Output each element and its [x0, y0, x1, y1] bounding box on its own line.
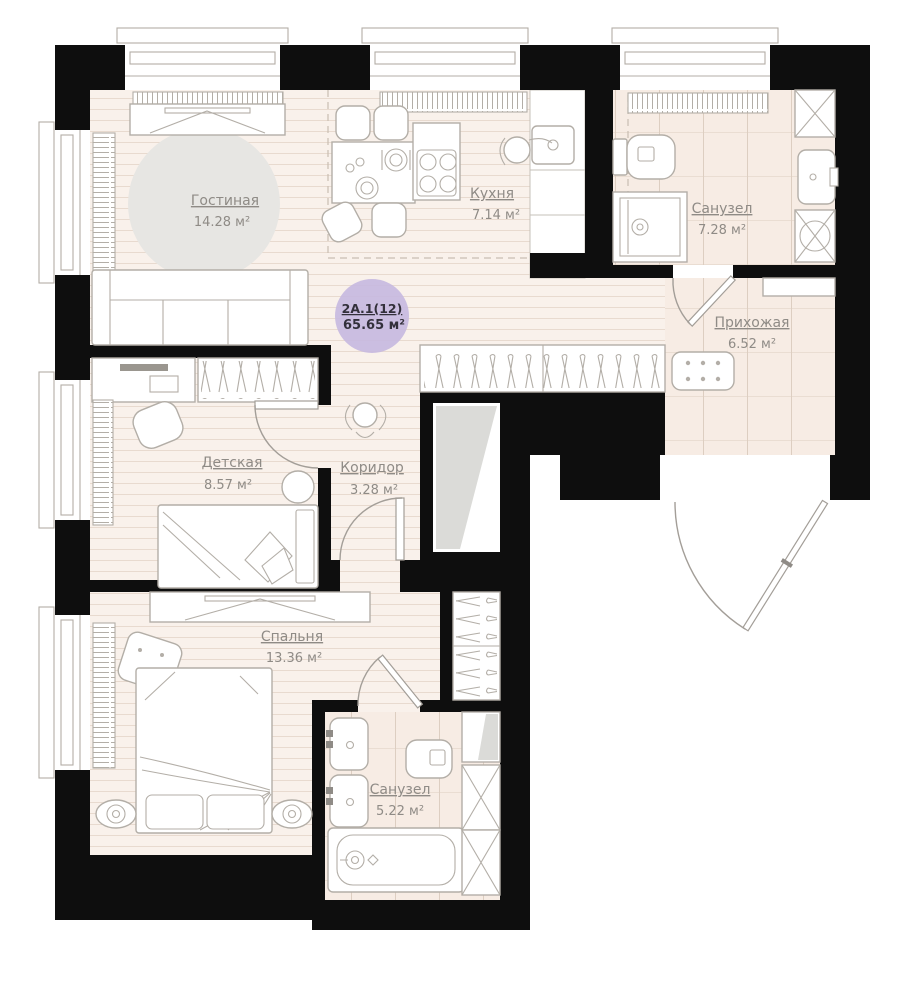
unit-badge-circle: [335, 279, 409, 353]
window-living-top: [117, 28, 288, 90]
window-kids-left: [39, 372, 90, 528]
bath2-cabinet: [462, 830, 500, 895]
radiator: [133, 92, 283, 104]
label-bath1-name: Санузел: [692, 201, 753, 217]
unit-badge: 2А.1(12) 65.65 м²: [335, 279, 409, 353]
floorplan-page: Гостиная 14.28 м² Кухня 7.14 м² Санузел …: [0, 0, 915, 1000]
radiator: [93, 623, 115, 768]
label-hall-area: 6.52 м²: [728, 337, 776, 352]
label-corridor-area: 3.28 м²: [350, 483, 398, 498]
floorplan-svg: Гостиная 14.28 м² Кухня 7.14 м² Санузел …: [0, 0, 915, 1000]
label-bedroom-area: 13.36 м²: [266, 651, 322, 666]
hall-bench: [672, 352, 734, 390]
kitchen-counter-column: [530, 90, 585, 278]
kitchen-sink: [532, 126, 574, 164]
stove-island: [413, 123, 460, 200]
bedroom-wardrobe: [453, 592, 500, 700]
dining-table: [332, 142, 415, 203]
label-kids-name: Детская: [202, 455, 263, 471]
double-bed: [136, 668, 272, 833]
nightstand: [272, 800, 312, 828]
unit-code: 2А.1(12): [342, 301, 403, 316]
hall-wardrobe: [420, 345, 665, 392]
tall-cabinet: [795, 90, 835, 137]
shaft: [433, 403, 500, 552]
toilet: [613, 135, 675, 179]
bath2-sink: [326, 718, 368, 770]
radiator: [93, 400, 113, 525]
bathtub: [328, 828, 464, 892]
label-living-name: Гостиная: [191, 193, 259, 209]
washing-machine: [795, 210, 835, 262]
radiator: [93, 133, 115, 273]
label-bedroom-name: Спальня: [261, 629, 323, 645]
bath1-sink: [798, 150, 838, 204]
label-corridor-name: Коридор: [340, 460, 404, 476]
window-living-left: [39, 122, 90, 283]
label-bath2-name: Санузел: [370, 782, 431, 798]
label-hall-name: Прихожая: [715, 315, 790, 331]
label-bath2-area: 5.22 м²: [376, 804, 424, 819]
label-living-area: 14.28 м²: [194, 215, 250, 230]
floor-corridor: [318, 345, 420, 560]
window-kitchen-top: [362, 28, 528, 90]
window-bedroom-left: [39, 607, 90, 778]
bath2-toilet: [406, 740, 452, 778]
entrance-door: [675, 500, 828, 630]
shower: [613, 192, 687, 262]
bath2-sink: [326, 775, 368, 827]
kids-wardrobe: [198, 358, 318, 402]
label-kitchen-name: Кухня: [470, 186, 514, 202]
window-bath1-top: [612, 28, 778, 90]
hall-cabinet: [763, 278, 835, 296]
label-kitchen-area: 7.14 м²: [472, 208, 520, 223]
kids-desk: [92, 358, 195, 402]
bath2-niche: [462, 712, 500, 762]
radiator: [628, 93, 768, 113]
tv-console: [130, 104, 285, 135]
bath2-cabinet: [462, 765, 500, 830]
label-bath1-area: 7.28 м²: [698, 223, 746, 238]
kids-table: [282, 471, 314, 503]
floor-passage: [530, 278, 665, 345]
unit-area: 65.65 м²: [343, 318, 405, 333]
bedroom-tv-console: [150, 592, 370, 622]
label-kids-area: 8.57 м²: [204, 478, 252, 493]
kids-bed: [158, 505, 318, 588]
nightstand: [96, 800, 136, 828]
sofa: [92, 270, 308, 345]
